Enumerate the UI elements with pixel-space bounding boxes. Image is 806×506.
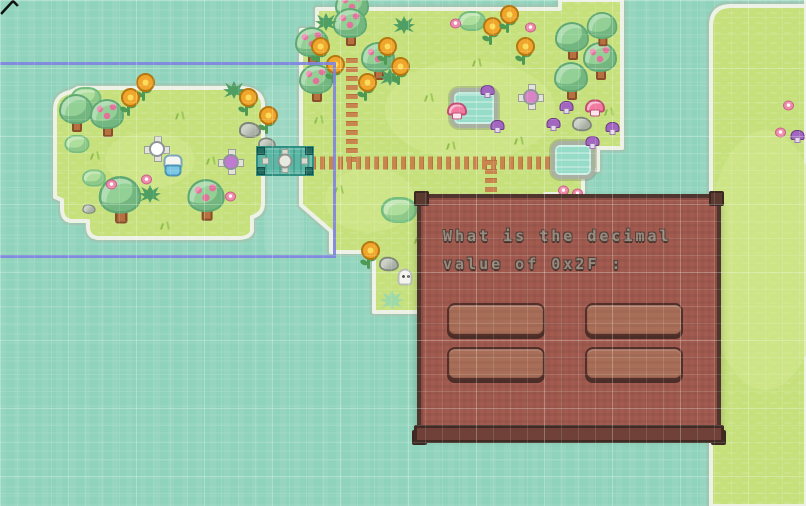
grass-tuft-icon — [424, 94, 436, 103]
mushroom-icon — [560, 101, 573, 113]
tree-icon — [586, 12, 618, 48]
pink-flower-icon — [525, 23, 535, 32]
mushroom-icon — [791, 130, 804, 142]
dialog-corner-nub — [709, 191, 724, 206]
grass-tuft-icon — [472, 59, 484, 68]
dialog-bottom-ledge — [414, 425, 724, 443]
mushroom-icon — [481, 85, 494, 97]
question-dialog: What is the decimal value of 0x2F : — [417, 194, 721, 434]
pinwheel-icon — [518, 84, 544, 110]
sunflower-icon — [481, 17, 499, 47]
answer-grid — [447, 303, 717, 380]
ghost-character — [398, 269, 413, 286]
answer-button-4[interactable] — [585, 347, 683, 380]
pink-flower-icon — [783, 101, 793, 110]
sunflower-icon — [359, 241, 377, 271]
mushroom-icon — [606, 122, 619, 134]
mushroom-icon — [586, 136, 599, 148]
clover-icon — [380, 290, 404, 310]
fern-icon — [315, 13, 337, 31]
dirt-path-horizontal — [311, 157, 579, 170]
sunflower-icon — [514, 37, 532, 67]
game-scene: What is the decimal value of 0x2F : — [0, 0, 806, 506]
fern-icon — [393, 16, 415, 34]
grass-tuft-icon — [604, 108, 616, 117]
bush-icon — [381, 197, 417, 223]
dialog-corner-nub — [414, 191, 429, 206]
pink-flower-icon — [775, 128, 785, 137]
grass-tuft-icon — [446, 142, 458, 151]
dirt-path-vertical — [346, 54, 358, 162]
camera-bounds-outline — [0, 62, 336, 258]
answer-button-2[interactable] — [585, 303, 683, 336]
pink-flower-icon — [450, 19, 460, 28]
rock-icon — [379, 257, 399, 271]
answer-button-3[interactable] — [447, 347, 545, 380]
rock-icon — [572, 117, 592, 131]
cursor-mark-icon — [0, 0, 24, 20]
mushroom-icon — [547, 118, 560, 130]
sunflower-icon — [356, 73, 374, 103]
question-line-1: What is the decimal — [443, 222, 717, 250]
question-line-2: value of 0x2F : — [443, 250, 717, 278]
tree-icon — [553, 62, 589, 102]
question-text: What is the decimal value of 0x2F : — [443, 222, 717, 278]
pink-mushroom-icon — [585, 100, 603, 117]
sunflower-icon — [389, 57, 407, 87]
answer-button-1[interactable] — [447, 303, 545, 336]
pink-mushroom-icon — [447, 103, 465, 120]
mushroom-icon — [491, 120, 504, 132]
sunflower-icon — [498, 5, 516, 35]
grass-tuft-icon — [514, 137, 526, 146]
